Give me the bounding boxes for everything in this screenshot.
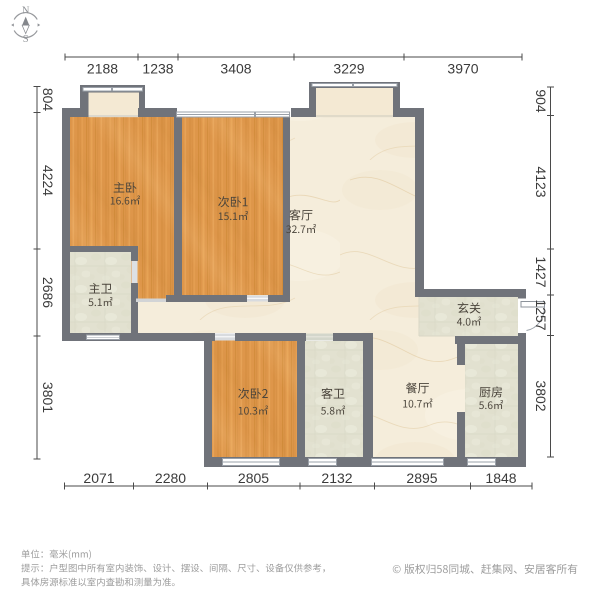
svg-text:4224: 4224	[40, 165, 56, 196]
svg-text:1848: 1848	[485, 470, 516, 486]
svg-text:2686: 2686	[40, 277, 56, 308]
svg-text:4123: 4123	[533, 166, 549, 197]
svg-text:2895: 2895	[406, 470, 437, 486]
svg-text:N: N	[22, 6, 30, 17]
svg-text:2132: 2132	[321, 470, 352, 486]
svg-text:3970: 3970	[447, 61, 478, 77]
svg-text:1238: 1238	[142, 61, 173, 77]
svg-text:2280: 2280	[155, 470, 186, 486]
svg-text:3229: 3229	[333, 61, 364, 77]
svg-text:1257: 1257	[533, 299, 549, 330]
svg-text:904: 904	[533, 89, 549, 113]
svg-text:2805: 2805	[238, 470, 269, 486]
svg-text:2071: 2071	[83, 470, 114, 486]
svg-text:2188: 2188	[87, 61, 118, 77]
svg-text:804: 804	[40, 88, 56, 112]
svg-text:1427: 1427	[533, 256, 549, 287]
svg-text:3802: 3802	[533, 380, 549, 411]
svg-text:S: S	[23, 34, 29, 45]
svg-text:3408: 3408	[220, 61, 251, 77]
svg-text:3801: 3801	[40, 382, 56, 413]
